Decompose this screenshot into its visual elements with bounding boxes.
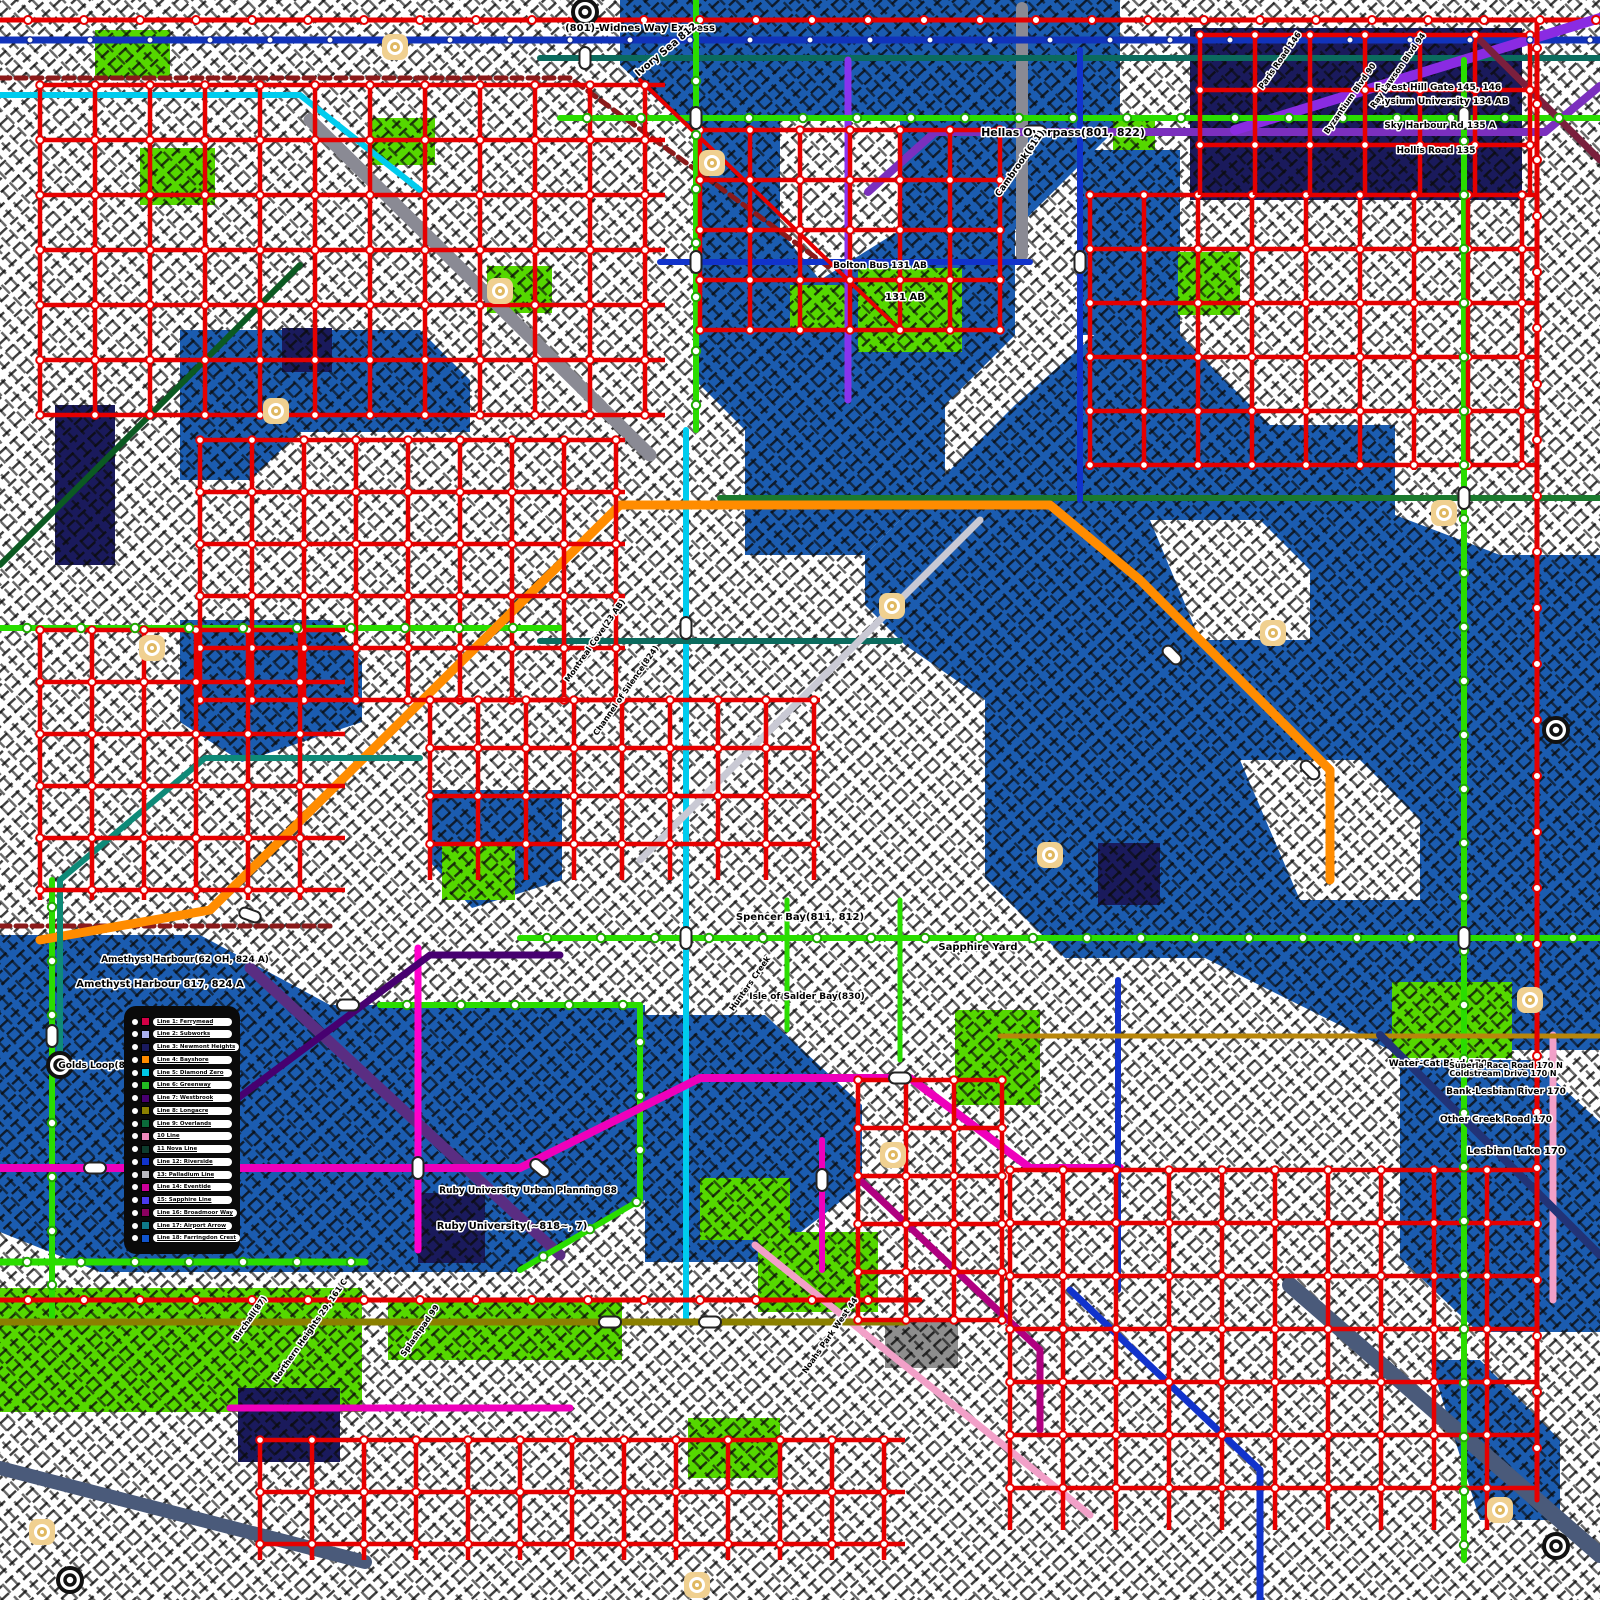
stop-green-vert-right	[1460, 569, 1468, 577]
stop-red-vert-right	[1533, 772, 1541, 780]
bus-stop	[476, 411, 484, 419]
stop-green-sw	[131, 1258, 139, 1266]
bus-stop	[854, 1124, 862, 1132]
stop-navy-express	[1467, 37, 1473, 43]
legend-line-pill: Line 5: Diamond Zero	[153, 1069, 232, 1077]
bus-stop	[311, 191, 319, 199]
bus-stop	[474, 792, 482, 800]
bus-stop	[256, 1488, 264, 1496]
bus-stop	[1248, 245, 1256, 253]
stop-red-vert-right	[1533, 212, 1541, 220]
bus-stop	[244, 782, 252, 790]
stop-red-vert-right	[1533, 1276, 1541, 1284]
stop-green-spencer	[1407, 934, 1415, 942]
bus-stop	[570, 840, 578, 848]
bus-stop	[531, 81, 539, 89]
bus-stop	[1006, 1431, 1014, 1439]
stop-red-south	[528, 1296, 536, 1304]
stop-green-top	[799, 114, 807, 122]
bus-stop	[311, 301, 319, 309]
map-label: Sapphire Yard	[938, 942, 1017, 953]
bus-stop	[568, 1540, 576, 1548]
interchange-capsule	[337, 1000, 359, 1011]
map-label: Isle of Salder Bay(830)	[749, 992, 865, 1002]
depot-icon	[1487, 1497, 1513, 1523]
depot-icon	[1517, 987, 1543, 1013]
bus-stop	[846, 276, 854, 284]
bus-stop	[421, 356, 429, 364]
bus-stop	[586, 246, 594, 254]
bus-stop	[1112, 1325, 1120, 1333]
stop-red-south	[192, 1296, 200, 1304]
stop-green-loop	[636, 1092, 644, 1100]
bus-stop	[828, 1488, 836, 1496]
bus-stop	[1356, 191, 1364, 199]
stop-red-express-top	[1424, 16, 1432, 24]
bus-stop	[91, 191, 99, 199]
bus-stop	[516, 1436, 524, 1444]
bus-stop	[1430, 1325, 1438, 1333]
bus-stop	[612, 540, 620, 548]
depot-dot	[1498, 1508, 1502, 1512]
bus-stop	[1483, 1484, 1491, 1492]
depot-icon	[1037, 842, 1063, 868]
stop-green-loop	[636, 1038, 644, 1046]
legend-bullet-icon	[132, 1210, 138, 1216]
interchange-capsule	[1459, 927, 1470, 949]
bus-stop	[996, 226, 1004, 234]
stop-navy-express	[1587, 37, 1593, 43]
bus-stop	[91, 356, 99, 364]
bus-stop	[508, 644, 516, 652]
bus-stop	[36, 356, 44, 364]
bus-stop	[91, 301, 99, 309]
bus-stop	[360, 1540, 368, 1548]
depot-dot	[1528, 998, 1532, 1002]
bus-stop	[560, 540, 568, 548]
legend-line-pill: Line 8: Longacre	[153, 1107, 232, 1115]
map-label: Hollis Road 135	[1396, 146, 1475, 156]
bus-stop	[946, 226, 954, 234]
legend-row: Line 18: Farringdon Crest	[132, 1233, 232, 1244]
legend-bullet-icon	[132, 1019, 138, 1025]
bus-stop	[950, 1220, 958, 1228]
stop-green-vert-right	[1460, 407, 1468, 415]
stop-red-express-top	[1032, 16, 1040, 24]
legend-row: Line 9: Overlands	[132, 1118, 232, 1129]
stop-green-spencer	[1569, 934, 1577, 942]
bus-stop	[1112, 1166, 1120, 1174]
depot-icon	[382, 34, 408, 60]
stop-navy-express	[1107, 37, 1113, 43]
bus-stop	[796, 226, 804, 234]
stop-red-south	[416, 1296, 424, 1304]
stop-navy-express	[927, 37, 933, 43]
bus-stop	[36, 782, 44, 790]
bus-stop	[902, 1220, 910, 1228]
stop-red-express-top	[360, 16, 368, 24]
bus-stop	[996, 276, 1004, 284]
map-label: Forest Hill Gate 145, 146	[1375, 83, 1501, 93]
bus-stop	[88, 886, 96, 894]
legend-row: Line 16: Broadmoor Way	[132, 1207, 232, 1218]
bus-stop	[1112, 1272, 1120, 1280]
map-label: Ruby University Urban Planning 88	[439, 1186, 617, 1196]
bus-stop	[746, 226, 754, 234]
depot-icon	[1260, 620, 1286, 646]
depot-icon	[880, 1142, 906, 1168]
bus-stop	[248, 488, 256, 496]
bus-stop	[474, 744, 482, 752]
legend-row: Line 17: Airport Arrow	[132, 1220, 232, 1231]
stop-green-top	[637, 114, 645, 122]
bus-stop	[1218, 1219, 1226, 1227]
bus-stop	[946, 176, 954, 184]
bus-stop	[1377, 1272, 1385, 1280]
stop-green-top	[853, 114, 861, 122]
legend-line-pill: Line 1: Ferrymead	[153, 1018, 232, 1026]
legend-line-label: Line 1: Ferrymead	[157, 1019, 213, 1025]
bus-stop	[426, 792, 434, 800]
bus-stop	[612, 644, 620, 652]
legend-line-swatch	[141, 1106, 150, 1115]
stop-green-sw	[239, 1258, 247, 1266]
bus-stop	[612, 488, 620, 496]
stop-green-spencer	[1191, 934, 1199, 942]
bus-stop	[476, 191, 484, 199]
bus-stop	[421, 136, 429, 144]
legend-line-label: Line 4: Bayshore	[157, 1057, 209, 1063]
stop-navy-express	[207, 37, 213, 43]
stop-navy-express	[1527, 37, 1533, 43]
bus-stop	[1306, 86, 1314, 94]
bus-stop	[244, 730, 252, 738]
bus-stop	[796, 276, 804, 284]
bus-stop	[1112, 1378, 1120, 1386]
stop-red-vert-right	[1533, 660, 1541, 668]
terminus-icon	[1544, 1534, 1568, 1558]
map-label: Amethyst Harbour 817, 824 A	[76, 979, 244, 990]
bus-stop	[1377, 1431, 1385, 1439]
stop-red-south	[472, 1296, 480, 1304]
stop-green-vert-left	[48, 903, 56, 911]
stop-red-south	[864, 1296, 872, 1304]
legend-line-swatch	[141, 1145, 150, 1154]
bus-stop	[1218, 1431, 1226, 1439]
stop-navy-express	[447, 37, 453, 43]
bus-stop	[846, 176, 854, 184]
transit-map-svg: (801)-Widnes Way ExpressIvory Sea 812Hel…	[0, 0, 1600, 1600]
bus-stop	[1112, 1484, 1120, 1492]
bus-stop	[998, 1316, 1006, 1324]
bus-stop	[854, 1316, 862, 1324]
stop-red-express-top	[864, 16, 872, 24]
stop-navy-express	[1167, 37, 1173, 43]
bus-stop	[946, 326, 954, 334]
bus-stop	[1483, 1431, 1491, 1439]
stop-navy-express	[507, 37, 513, 43]
bus-stop	[1086, 245, 1094, 253]
bus-stop	[1518, 299, 1526, 307]
bus-stop	[1059, 1272, 1067, 1280]
bus-stop	[1086, 353, 1094, 361]
depot-icon	[879, 593, 905, 619]
bus-stop	[998, 1268, 1006, 1276]
depot-dot	[1048, 853, 1052, 857]
legend-line-pill: Line 6: Greenway	[153, 1081, 232, 1089]
legend-line-label: Line 8: Longacre	[157, 1108, 208, 1114]
bus-stop	[1248, 407, 1256, 415]
bus-stop	[1165, 1378, 1173, 1386]
bus-stop	[256, 301, 264, 309]
bus-stop	[88, 626, 96, 634]
bus-stop	[531, 356, 539, 364]
terminus-inner	[1551, 725, 1561, 735]
bus-stop	[476, 246, 484, 254]
stop-red-vert-right	[1533, 1164, 1541, 1172]
legend-row: Line 4: Bayshore	[132, 1054, 232, 1065]
bus-stop	[366, 136, 374, 144]
bus-stop	[296, 730, 304, 738]
stop-green-vert-right	[1460, 137, 1468, 145]
stop-red-vert-right	[1533, 1388, 1541, 1396]
bus-stop	[456, 540, 464, 548]
bus-stop	[746, 126, 754, 134]
bus-stop	[1059, 1219, 1067, 1227]
bus-stop	[1324, 1219, 1332, 1227]
depot-dot	[695, 1583, 699, 1587]
bus-stop	[560, 436, 568, 444]
interchange-capsule	[691, 251, 702, 273]
bus-stop	[404, 488, 412, 496]
legend-line-swatch	[141, 1183, 150, 1192]
depot-icon	[29, 1519, 55, 1545]
terminus-icon	[58, 1568, 82, 1592]
depot-dot	[40, 1530, 44, 1534]
legend-line-label: Line 3: Newmont Heights	[157, 1044, 235, 1050]
legend-row: Line 6: Greenway	[132, 1080, 232, 1091]
depot-icon	[699, 150, 725, 176]
stop-red-vert-right	[1533, 44, 1541, 52]
bus-stop	[828, 1540, 836, 1548]
legend-line-swatch	[141, 1170, 150, 1179]
bus-stop	[196, 540, 204, 548]
bus-stop	[950, 1172, 958, 1180]
stop-red-vert-right	[1533, 1052, 1541, 1060]
bus-stop	[641, 356, 649, 364]
stop-green-vert-right	[1460, 353, 1468, 361]
stop-green-spencer	[1137, 934, 1145, 942]
bus-stop	[1302, 299, 1310, 307]
bus-stop	[1356, 299, 1364, 307]
stop-green-vert-right	[1460, 1325, 1468, 1333]
bus-stop	[300, 540, 308, 548]
bus-stop	[456, 436, 464, 444]
bus-stop	[91, 246, 99, 254]
stop-green-vert-left	[48, 957, 56, 965]
depot-dot	[274, 409, 278, 413]
bus-stop	[522, 840, 530, 848]
bus-stop	[522, 792, 530, 800]
bus-stop	[1248, 461, 1256, 469]
stop-green-vert-left	[48, 1011, 56, 1019]
bus-stop	[36, 626, 44, 634]
bus-stop	[1377, 1219, 1385, 1227]
bus-stop	[1410, 299, 1418, 307]
bus-stop	[36, 301, 44, 309]
bus-stop	[366, 191, 374, 199]
bus-stop	[776, 1540, 784, 1548]
bus-stop	[618, 792, 626, 800]
stop-green-top	[583, 114, 591, 122]
bus-stop	[1430, 1272, 1438, 1280]
bus-stop	[762, 792, 770, 800]
depot-dot	[891, 1153, 895, 1157]
bus-stop	[508, 436, 516, 444]
legend-bullet-icon	[132, 1159, 138, 1165]
stop-green-vert-right	[1460, 1379, 1468, 1387]
bus-stop	[1430, 1166, 1438, 1174]
bus-stop	[404, 436, 412, 444]
bus-stop	[902, 1316, 910, 1324]
stop-red-express-top	[1088, 16, 1096, 24]
stop-green-top	[907, 114, 915, 122]
bus-stop	[1356, 353, 1364, 361]
stop-red-vert-right	[1533, 268, 1541, 276]
stop-red-south	[136, 1296, 144, 1304]
interchange-capsule	[47, 1025, 58, 1047]
stop-red-express-top	[304, 16, 312, 24]
stop-green-vert-right	[1460, 1433, 1468, 1441]
bus-stop	[146, 191, 154, 199]
map-label: Ruby University(~818~, 7)	[437, 1221, 588, 1232]
bus-stop	[1271, 1166, 1279, 1174]
bus-stop	[36, 730, 44, 738]
legend-line-label: Line 16: Broadmoor Way	[157, 1210, 233, 1216]
stop-green-spencer	[921, 934, 929, 942]
stop-green-vert-right	[1460, 191, 1468, 199]
stop-red-express-top	[416, 16, 424, 24]
depot-icon	[263, 398, 289, 424]
bus-stop	[724, 1540, 732, 1548]
legend-line-pill: Line 12: Riverside	[153, 1158, 232, 1166]
bus-stop	[666, 696, 674, 704]
bus-stop	[421, 301, 429, 309]
legend-row: Line 7: Westbrook	[132, 1093, 232, 1104]
stop-red-express-top	[24, 16, 32, 24]
bus-stop	[308, 1436, 316, 1444]
bus-stop	[1271, 1272, 1279, 1280]
legend-bullet-icon	[132, 1095, 138, 1101]
bus-stop	[714, 792, 722, 800]
stop-green-west	[239, 624, 247, 632]
bus-stop	[36, 136, 44, 144]
bus-stop	[474, 696, 482, 704]
legend-line-label: Line 18: Farringdon Crest	[157, 1235, 236, 1241]
bus-stop	[244, 886, 252, 894]
bus-stop	[196, 592, 204, 600]
bus-stop	[1410, 461, 1418, 469]
stop-green-west	[509, 624, 517, 632]
bus-stop	[140, 834, 148, 842]
bus-stop	[300, 488, 308, 496]
bus-stop	[1006, 1325, 1014, 1333]
bus-stop	[1356, 407, 1364, 415]
bus-stop	[456, 592, 464, 600]
legend-line-label: Line 9: Overlands	[157, 1121, 211, 1127]
legend-line-label: Line 17: Airport Arrow	[157, 1223, 226, 1229]
stop-red-vert-right	[1533, 156, 1541, 164]
stop-green-spencer	[1245, 934, 1253, 942]
stop-green-spencer	[867, 934, 875, 942]
legend-line-pill: Line 14: Eventide	[153, 1183, 232, 1191]
bus-stop	[1251, 31, 1259, 39]
bus-stop	[620, 1488, 628, 1496]
stop-green-spencer	[1299, 934, 1307, 942]
bus-stop	[846, 226, 854, 234]
stop-red-vert-right	[1533, 604, 1541, 612]
bus-stop	[1410, 407, 1418, 415]
stop-green-vert-left	[48, 1173, 56, 1181]
stop-green-spencer	[651, 934, 659, 942]
bus-stop	[796, 126, 804, 134]
stop-green-west	[77, 624, 85, 632]
bus-stop	[360, 1488, 368, 1496]
bus-stop	[404, 644, 412, 652]
legend-line-swatch	[141, 1043, 150, 1052]
bus-stop	[296, 834, 304, 842]
bus-stop	[696, 276, 704, 284]
stop-red-express-top	[136, 16, 144, 24]
stop-green-west	[347, 624, 355, 632]
bus-stop	[618, 744, 626, 752]
stop-red-south	[360, 1296, 368, 1304]
bus-stop	[311, 246, 319, 254]
stop-green-spencer	[1029, 934, 1037, 942]
stop-navy-express	[267, 37, 273, 43]
bus-stop	[464, 1488, 472, 1496]
stop-green-west	[293, 624, 301, 632]
legend-line-swatch	[141, 1017, 150, 1026]
terminus-icon	[1544, 718, 1568, 742]
legend-line-label: Line 2: Subworks	[157, 1031, 210, 1037]
map-label: Bank-Lesbian River 170	[1446, 1087, 1566, 1097]
legend-line-label: Line 7: Westbrook	[157, 1095, 213, 1101]
bus-stop	[88, 678, 96, 686]
bus-stop	[1483, 1378, 1491, 1386]
stop-green-loop	[457, 1001, 465, 1009]
legend-bullet-icon	[132, 1108, 138, 1114]
stop-red-vert-right	[1533, 940, 1541, 948]
bus-stop	[1112, 1219, 1120, 1227]
bus-stop	[248, 540, 256, 548]
bus-stop	[586, 81, 594, 89]
bus-stop	[88, 782, 96, 790]
bus-stop	[296, 886, 304, 894]
bus-stop	[1430, 1378, 1438, 1386]
bus-stop	[146, 411, 154, 419]
stop-navy-express	[327, 37, 333, 43]
bus-stop	[36, 81, 44, 89]
interchange-capsule	[681, 617, 692, 639]
terminus-inner	[580, 7, 590, 17]
depot-dot	[393, 45, 397, 49]
legend-row: Line 14: Eventide	[132, 1182, 232, 1193]
bus-stop	[1271, 1431, 1279, 1439]
legend-line-label: Line 14: Eventide	[157, 1184, 211, 1190]
interchange-capsule	[691, 107, 702, 129]
bus-stop	[404, 540, 412, 548]
